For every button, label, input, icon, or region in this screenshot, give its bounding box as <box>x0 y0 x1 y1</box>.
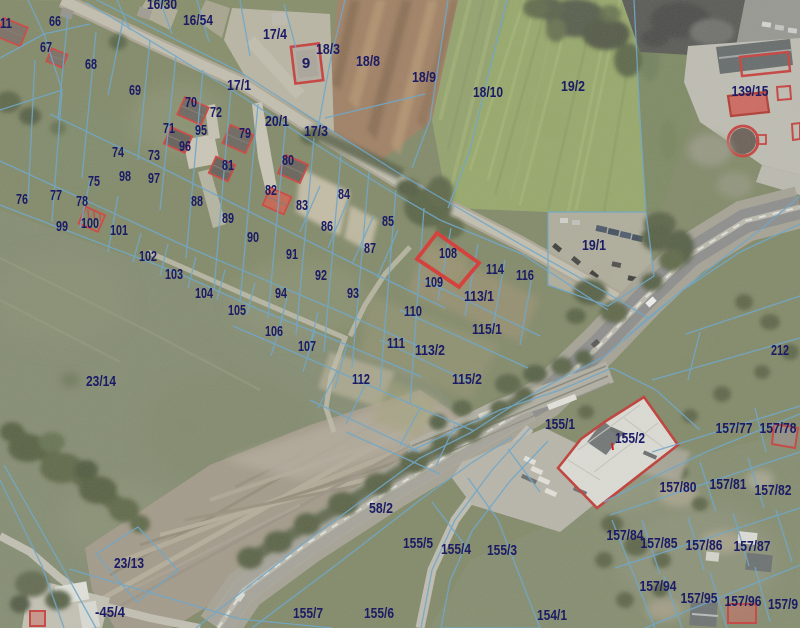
svg-text:155/4: 155/4 <box>441 541 472 558</box>
svg-text:212: 212 <box>771 342 789 359</box>
svg-text:75: 75 <box>88 173 100 190</box>
svg-text:157/95: 157/95 <box>681 590 718 607</box>
svg-text:157/78: 157/78 <box>760 420 797 437</box>
svg-text:95: 95 <box>195 122 207 139</box>
svg-text:72: 72 <box>210 104 222 121</box>
svg-text:17/3: 17/3 <box>304 123 328 140</box>
svg-text:157/81: 157/81 <box>710 476 747 493</box>
svg-text:115/2: 115/2 <box>452 371 482 388</box>
svg-text:157/87: 157/87 <box>734 538 771 555</box>
svg-text:114: 114 <box>486 261 504 278</box>
svg-text:78: 78 <box>76 193 88 210</box>
svg-text:17/4: 17/4 <box>263 26 288 43</box>
svg-text:96: 96 <box>179 138 191 155</box>
svg-text:19/1: 19/1 <box>582 237 606 254</box>
svg-text:155/2: 155/2 <box>615 430 645 447</box>
svg-text:101: 101 <box>110 222 128 239</box>
svg-text:82: 82 <box>265 182 277 199</box>
svg-text:-45/4: -45/4 <box>95 604 126 621</box>
svg-text:68: 68 <box>85 56 97 73</box>
svg-text:16/30: 16/30 <box>147 0 177 13</box>
svg-text:76: 76 <box>16 191 28 208</box>
svg-text:9: 9 <box>302 55 310 72</box>
svg-text:102: 102 <box>139 248 157 265</box>
svg-text:155/1: 155/1 <box>545 416 575 433</box>
svg-text:89: 89 <box>222 210 234 227</box>
svg-text:97: 97 <box>148 170 160 187</box>
svg-text:100: 100 <box>81 215 99 232</box>
svg-text:91: 91 <box>286 246 298 263</box>
svg-text:74: 74 <box>112 144 124 161</box>
svg-text:71: 71 <box>163 120 175 137</box>
svg-text:108: 108 <box>439 245 457 262</box>
svg-text:77: 77 <box>50 187 62 204</box>
svg-text:17/1: 17/1 <box>227 77 251 94</box>
svg-text:157/96: 157/96 <box>725 593 762 610</box>
svg-text:87: 87 <box>364 240 376 257</box>
svg-text:73: 73 <box>148 147 160 164</box>
svg-text:112: 112 <box>352 371 370 388</box>
svg-text:104: 104 <box>195 285 213 302</box>
svg-text:88: 88 <box>191 193 203 210</box>
svg-text:81: 81 <box>222 157 234 174</box>
svg-text:157/77: 157/77 <box>716 420 753 437</box>
svg-text:155/7: 155/7 <box>293 605 323 622</box>
svg-text:110: 110 <box>404 303 422 320</box>
svg-text:157/80: 157/80 <box>660 479 697 496</box>
svg-text:58/2: 58/2 <box>369 500 393 517</box>
svg-text:115/1: 115/1 <box>472 321 502 338</box>
svg-text:154/1: 154/1 <box>537 607 567 624</box>
svg-text:157/86: 157/86 <box>686 537 723 554</box>
svg-text:86: 86 <box>321 218 333 235</box>
svg-text:83: 83 <box>296 197 308 214</box>
svg-text:157/94: 157/94 <box>640 578 678 595</box>
svg-text:116: 116 <box>516 267 534 284</box>
svg-text:67: 67 <box>40 39 52 56</box>
svg-text:79: 79 <box>239 125 251 142</box>
svg-text:18/10: 18/10 <box>473 84 503 101</box>
svg-text:16/54: 16/54 <box>183 12 214 29</box>
svg-text:80: 80 <box>282 152 294 169</box>
svg-text:20/1: 20/1 <box>265 113 289 130</box>
svg-text:109: 109 <box>425 274 443 291</box>
svg-text:113/2: 113/2 <box>415 342 445 359</box>
svg-text:107: 107 <box>298 338 316 355</box>
svg-text:11: 11 <box>0 15 12 32</box>
svg-text:18/9: 18/9 <box>412 69 436 86</box>
svg-text:18/3: 18/3 <box>316 41 340 58</box>
svg-text:69: 69 <box>129 82 141 99</box>
svg-text:93: 93 <box>347 285 359 302</box>
svg-text:70: 70 <box>185 94 197 111</box>
svg-text:19/2: 19/2 <box>561 78 585 95</box>
svg-text:113/1: 113/1 <box>464 288 494 305</box>
svg-text:103: 103 <box>165 266 183 283</box>
svg-text:157/85: 157/85 <box>641 535 678 552</box>
svg-text:90: 90 <box>247 229 259 246</box>
svg-text:155/3: 155/3 <box>487 542 517 559</box>
svg-text:23/14: 23/14 <box>86 373 117 390</box>
svg-text:139/15: 139/15 <box>732 83 769 100</box>
svg-text:94: 94 <box>275 285 287 302</box>
svg-text:98: 98 <box>119 168 131 185</box>
svg-text:18/8: 18/8 <box>356 53 380 70</box>
svg-text:157/9: 157/9 <box>768 596 798 613</box>
svg-text:66: 66 <box>49 13 61 30</box>
svg-text:92: 92 <box>315 267 327 284</box>
svg-text:99: 99 <box>56 218 68 235</box>
svg-text:84: 84 <box>338 186 350 203</box>
svg-text:105: 105 <box>228 302 246 319</box>
svg-text:23/13: 23/13 <box>114 555 144 572</box>
svg-text:155/6: 155/6 <box>364 605 394 622</box>
svg-text:155/5: 155/5 <box>403 535 433 552</box>
svg-text:111: 111 <box>387 335 405 352</box>
svg-text:106: 106 <box>265 323 283 340</box>
svg-text:157/82: 157/82 <box>755 482 792 499</box>
svg-text:157/84: 157/84 <box>607 527 645 544</box>
svg-text:85: 85 <box>382 213 394 230</box>
